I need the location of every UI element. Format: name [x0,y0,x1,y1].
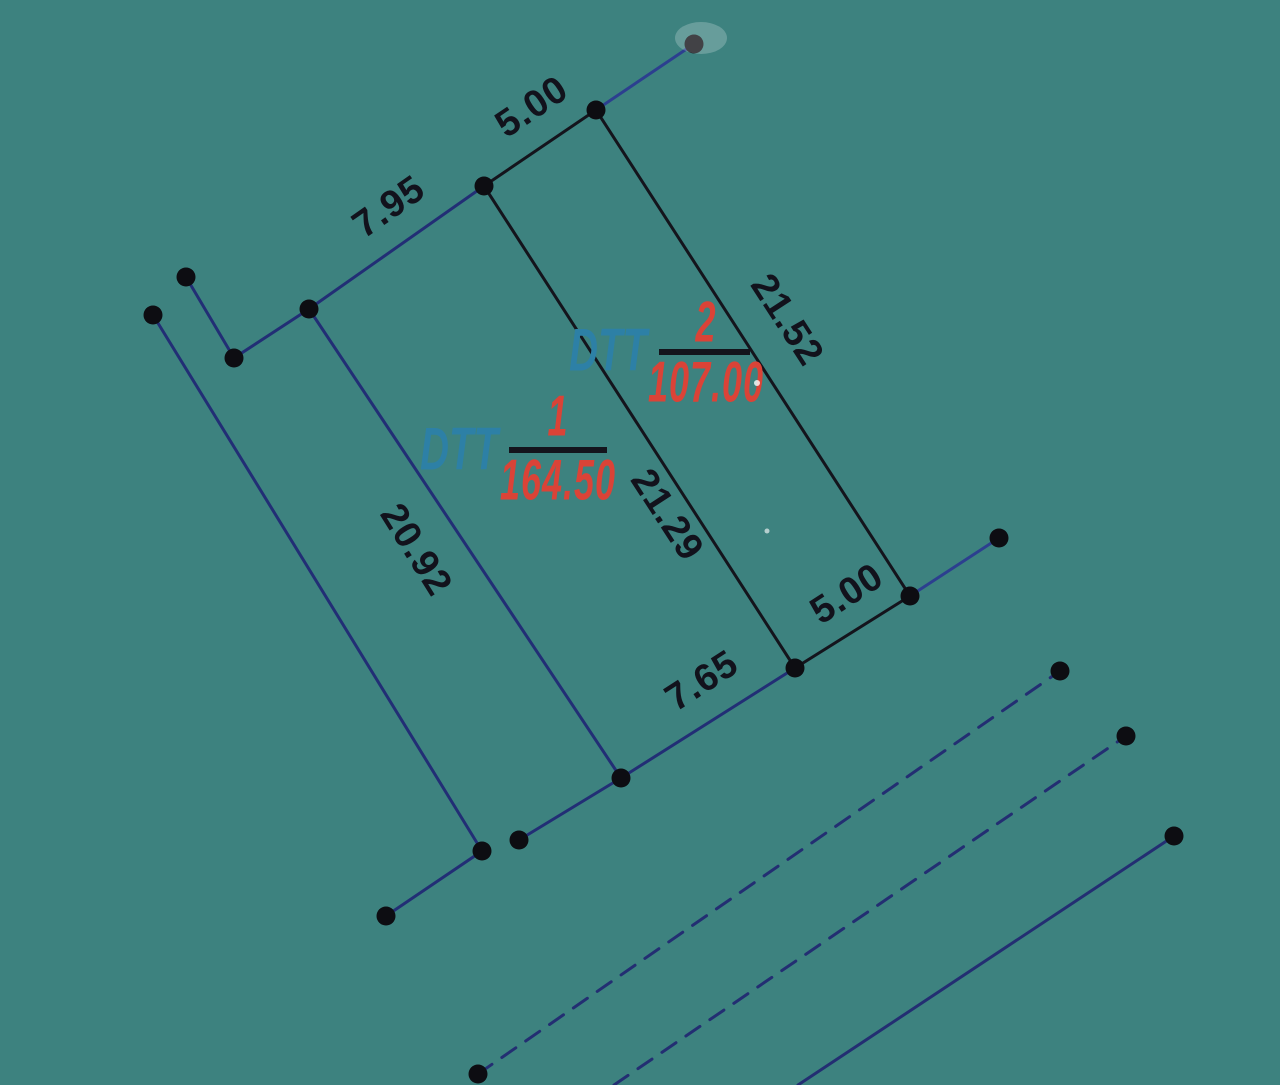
svg-text:107.00: 107.00 [648,351,764,415]
svg-text:2: 2 [695,291,717,355]
svg-text:DTT: DTT [420,415,501,482]
svg-text:164.50: 164.50 [500,449,616,513]
svg-text:DTT: DTT [569,316,650,383]
svg-text:1: 1 [547,385,568,449]
